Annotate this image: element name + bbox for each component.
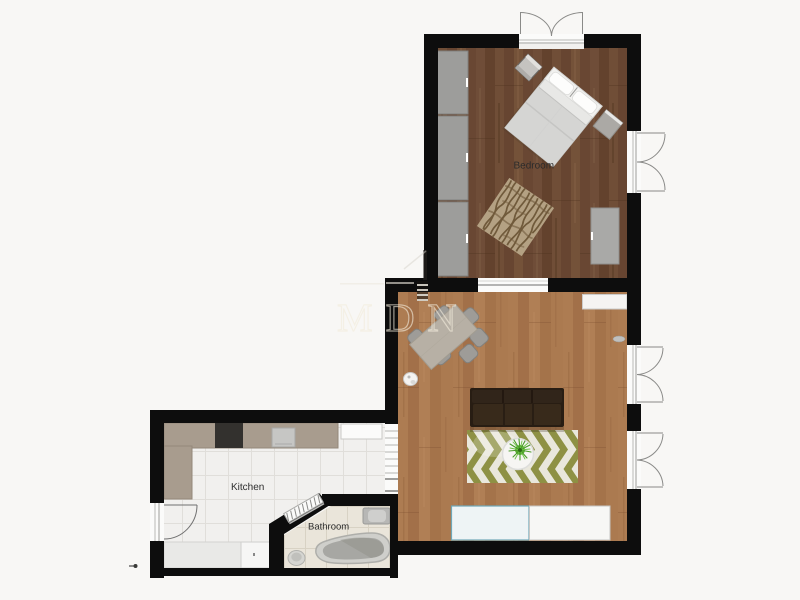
svg-text:Bathroom: Bathroom — [308, 522, 349, 533]
svg-text:MDN: MDN — [337, 295, 469, 340]
svg-text:Bedroom: Bedroom — [514, 161, 555, 172]
svg-text:Kitchen: Kitchen — [231, 482, 264, 493]
